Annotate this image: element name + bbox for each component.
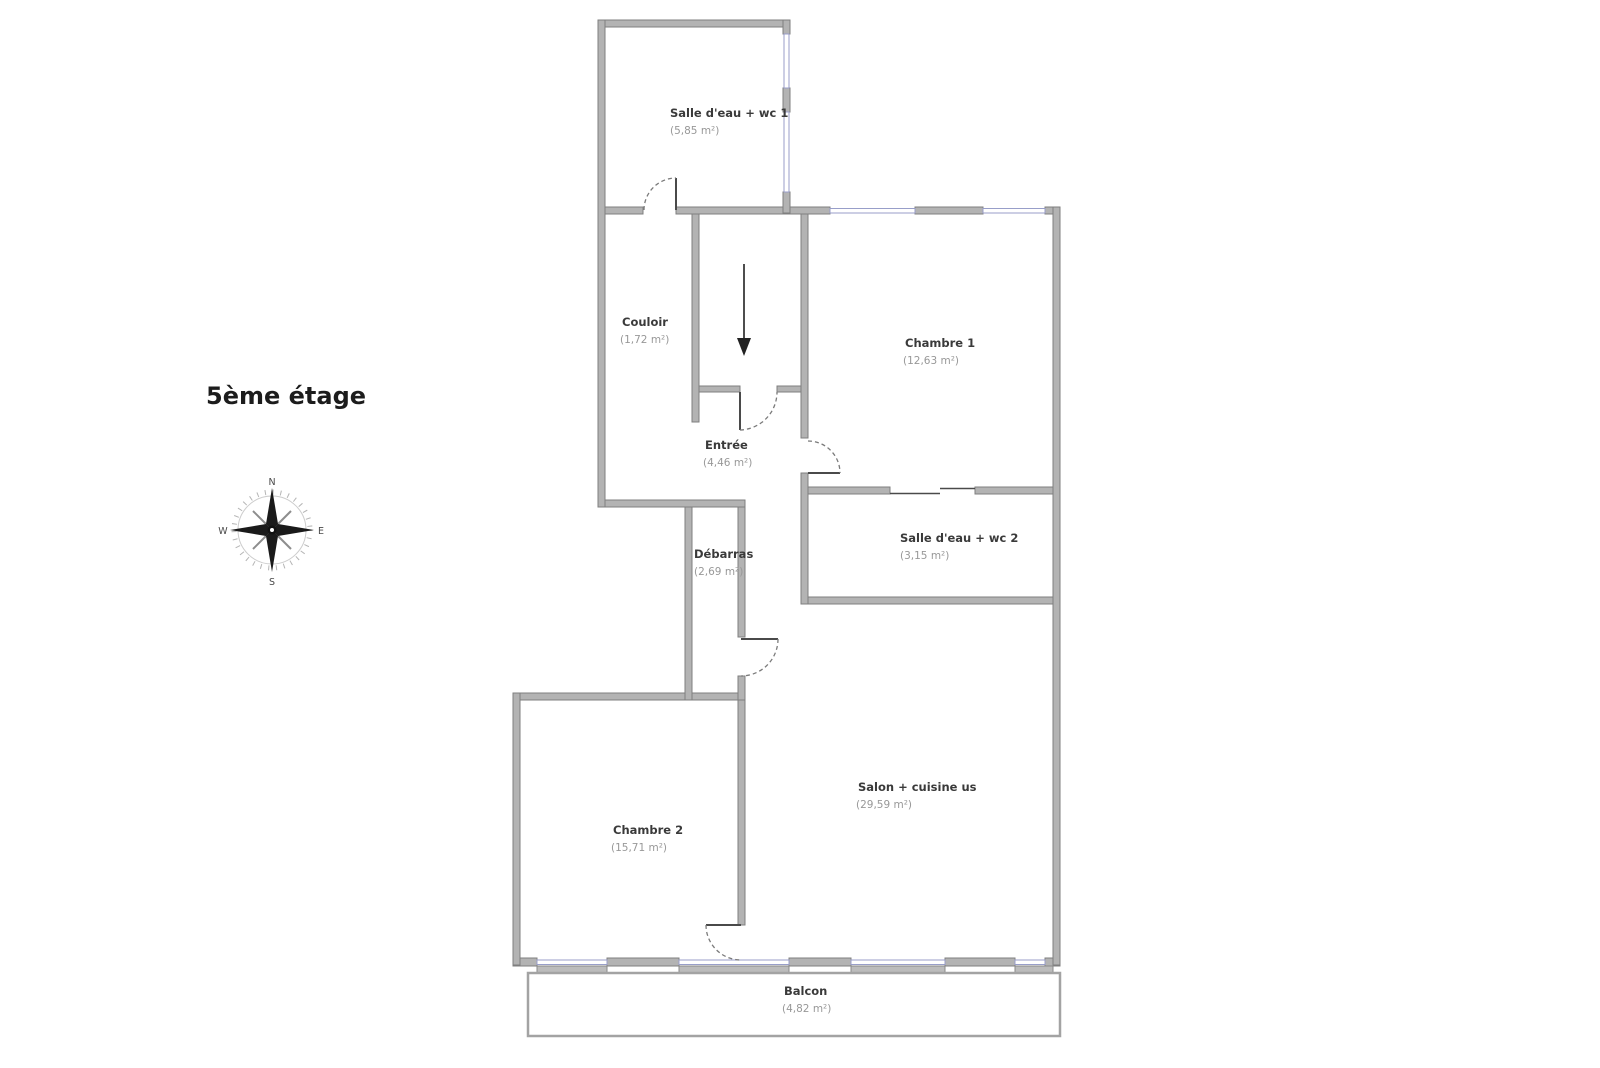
wall-segment — [789, 958, 851, 966]
room-area-bathroom1: (5,85 m²) — [670, 125, 719, 137]
wall-segment — [598, 20, 605, 507]
room-label-balcon: Balcon — [784, 984, 827, 998]
wall-segment — [783, 192, 790, 213]
room-label-bathroom2: Salle d'eau + wc 2 — [900, 531, 1018, 545]
room-area-bathroom2: (3,15 m²) — [900, 550, 949, 562]
wall-segment — [783, 20, 790, 34]
window — [983, 209, 1045, 214]
wall-segment — [808, 597, 1060, 604]
wall-segment — [1053, 207, 1060, 965]
wall-segment — [685, 507, 692, 700]
door-arc — [706, 925, 741, 960]
door-arc — [741, 639, 778, 676]
window — [784, 34, 789, 88]
door-arc — [644, 178, 676, 210]
floor-plan-page: 5ème étage — [0, 0, 1600, 1068]
stairs-down-arrow — [737, 264, 751, 356]
window — [830, 209, 915, 214]
compass-rose: N E S W — [218, 477, 324, 588]
room-label-salon: Salon + cuisine us — [858, 780, 977, 794]
wall-segment — [945, 958, 1015, 966]
compass-west-label: W — [218, 526, 228, 537]
compass-east-label: E — [318, 526, 324, 537]
wall-segment — [801, 473, 808, 604]
room-labels: Salle d'eau + wc 1 (5,85 m²) Couloir (1,… — [611, 106, 1018, 1015]
room-area-entree: (4,46 m²) — [703, 457, 752, 469]
wall-segment — [801, 214, 808, 438]
room-area-chambre2: (15,71 m²) — [611, 842, 667, 854]
room-area-debarras: (2,69 m²) — [694, 566, 743, 578]
room-label-couloir: Couloir — [622, 315, 668, 329]
wall-segment — [598, 20, 790, 27]
window — [537, 960, 607, 965]
wall-segment — [808, 487, 890, 494]
room-label-entree: Entrée — [705, 438, 748, 452]
room-area-balcon: (4,82 m²) — [782, 1003, 831, 1015]
window — [1015, 960, 1045, 965]
wall-segment — [598, 500, 745, 507]
wall-segment — [975, 487, 1060, 494]
wall-segment — [738, 676, 745, 700]
wall-segment — [692, 214, 699, 422]
floor-title: 5ème étage — [206, 382, 366, 410]
room-label-bathroom1: Salle d'eau + wc 1 — [670, 106, 788, 120]
window — [784, 112, 789, 192]
room-label-debarras: Débarras — [694, 547, 753, 561]
floor-plan-drawing: N E S W Salle d'eau + wc 1 (5,85 m²) Cou… — [0, 0, 1600, 1068]
room-area-couloir: (1,72 m²) — [620, 334, 669, 346]
window — [679, 960, 789, 965]
room-area-salon: (29,59 m²) — [856, 799, 912, 811]
compass-north-label: N — [268, 477, 275, 488]
wall-segment — [676, 207, 830, 214]
wall-segment — [607, 958, 679, 966]
wall-segment — [738, 700, 745, 925]
room-area-chambre1: (12,63 m²) — [903, 355, 959, 367]
room-label-chambre1: Chambre 1 — [905, 336, 975, 350]
window — [851, 960, 945, 965]
compass-south-label: S — [269, 577, 275, 588]
door-arc — [740, 392, 777, 430]
wall-segment — [915, 207, 983, 214]
wall-segment — [513, 693, 745, 700]
door-arc — [808, 441, 840, 473]
room-label-chambre2: Chambre 2 — [613, 823, 683, 837]
wall-segment — [513, 693, 520, 965]
